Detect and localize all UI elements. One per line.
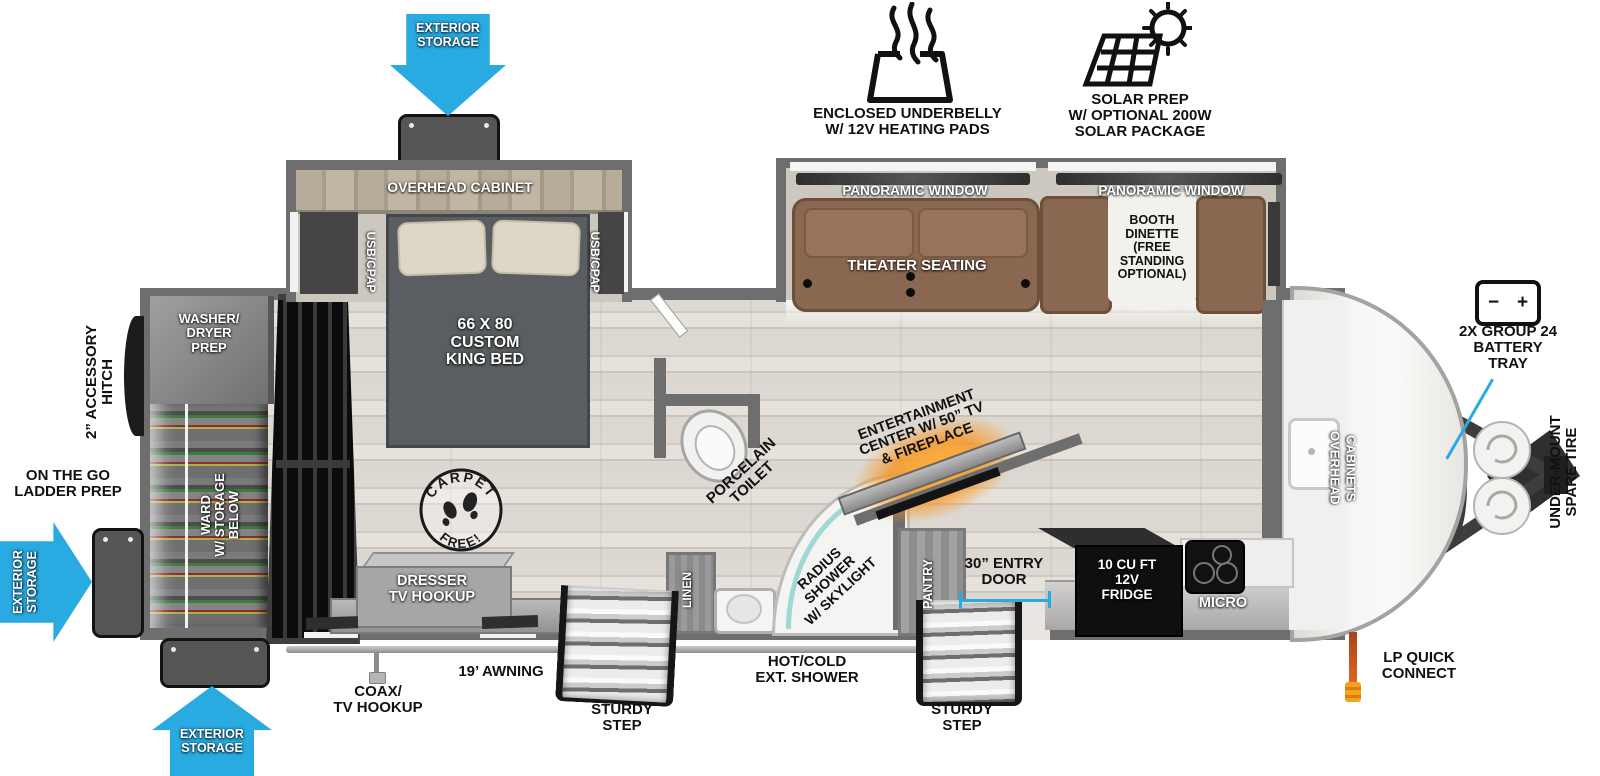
cooktop-burner xyxy=(1216,562,1238,584)
carpet-free-stamp: CARPET FREE! xyxy=(416,466,506,554)
lp-quick-connect-nozzle xyxy=(1345,682,1361,702)
floorplan-diagram: WASHER/ DRYER PREP WARD W/ STORAGE BELOW… xyxy=(0,0,1600,776)
usb-cpap-right-label: USB/CPAP xyxy=(584,214,604,310)
wardrobe-rod xyxy=(185,404,188,628)
dresser-label: DRESSER TV HOOKUP xyxy=(356,574,508,606)
battery-plus: + xyxy=(1517,292,1528,314)
lp-quick-connect-pipe xyxy=(1349,632,1357,684)
living-slide-end-window xyxy=(1268,202,1280,286)
cupholder xyxy=(803,279,812,288)
exterior-storage-door-rear xyxy=(92,528,144,638)
king-bed-label: 66 X 80 CUSTOM KING BED xyxy=(400,316,570,369)
toilet-room-wall xyxy=(654,358,666,458)
underbelly-label: ENCLOSED UNDERBELLY W/ 12V HEATING PADS xyxy=(795,106,1020,138)
pillow xyxy=(491,219,581,276)
entry-door-label: 30” ENTRY DOOR xyxy=(950,556,1058,588)
floor-mat xyxy=(482,615,538,629)
cupholder xyxy=(906,272,915,281)
rear-bumper xyxy=(124,316,144,436)
kitchen-sink-drain xyxy=(1308,448,1315,455)
solar-prep-label: SOLAR PREP W/ OPTIONAL 200W SOLAR PACKAG… xyxy=(1040,92,1240,141)
slatted-divider-rail xyxy=(276,460,350,468)
washer-dryer-label: WASHER/ DRYER PREP xyxy=(150,312,268,355)
sturdy-step-left xyxy=(555,585,679,707)
awning-label: 19’ AWNING xyxy=(442,664,560,680)
cooktop-burner xyxy=(1212,545,1232,565)
panoramic-window-left-label: PANORAMIC WINDOW xyxy=(800,184,1030,199)
propane-tank-icon xyxy=(1474,478,1530,534)
heated-underbelly-icon xyxy=(860,2,960,106)
coax-label: COAX/ TV HOOKUP xyxy=(326,684,430,716)
linen-label: LINEN xyxy=(679,550,697,630)
pillow xyxy=(397,219,487,276)
theater-cushion xyxy=(918,208,1028,258)
entry-door-measure-tick xyxy=(959,591,962,608)
wardrobe-label: WARD W/ STORAGE BELOW xyxy=(189,460,251,570)
entry-door-measure-tick xyxy=(1048,591,1051,608)
micro-label: MICRO xyxy=(1188,596,1258,612)
propane-tank-icon xyxy=(1474,422,1530,478)
ladder-prep-label: ON THE GO LADDER PREP xyxy=(5,468,131,500)
ext-shower-label: HOT/COLD EXT. SHOWER xyxy=(738,654,876,686)
theater-cushion xyxy=(804,208,914,258)
battery-tray-label: 2X GROUP 24 BATTERY TRAY xyxy=(1448,324,1568,373)
sturdy-step-right-label: STURDY STEP xyxy=(914,702,1010,734)
panoramic-window-glass-left xyxy=(790,162,1036,171)
overhead-cabinets-label: OVERHEAD CABINETS xyxy=(1326,402,1372,534)
cooktop-burner xyxy=(1193,562,1215,584)
sturdy-step-left-label: STURDY STEP xyxy=(572,702,672,734)
accessory-hitch-label: 2” ACCESSORY HITCH xyxy=(77,307,123,457)
panoramic-window-glass-right xyxy=(1048,162,1276,171)
cupholder xyxy=(906,288,915,297)
exterior-storage-box-bottom xyxy=(160,638,270,688)
dinette-bench-right xyxy=(1196,196,1266,314)
theater-seating-label: THEATER SEATING xyxy=(822,258,1012,275)
toilet-room-wall xyxy=(654,394,760,406)
overhead-cabinet-label: OVERHEAD CABINET xyxy=(330,180,590,195)
bedroom-window-left xyxy=(290,212,298,292)
panoramic-window-right-label: PANORAMIC WINDOW xyxy=(1056,184,1286,199)
battery-icon: − + xyxy=(1475,280,1541,326)
exterior-storage-bottom-label: EXTERIOR STORAGE xyxy=(152,728,272,756)
floor-mat xyxy=(306,616,358,630)
battery-minus: − xyxy=(1488,292,1499,314)
exterior-storage-left-label: EXTERIOR STORAGE xyxy=(6,527,46,637)
entry-door-measure-line xyxy=(962,599,1050,602)
slatted-divider xyxy=(266,294,360,644)
pantry-label: PANTRY xyxy=(919,539,939,629)
spare-tire-label: UNDER-MOUNT SPARE TIRE xyxy=(1541,382,1587,562)
exterior-storage-top-label: EXTERIOR STORAGE xyxy=(390,22,506,50)
usb-cpap-left-label: USB/CPAP xyxy=(360,214,380,310)
nightstand-left xyxy=(300,212,358,294)
lp-quick-connect-label: LP QUICK CONNECT xyxy=(1366,650,1472,682)
fridge-label: 10 CU FT 12V FRIDGE xyxy=(1075,558,1179,603)
cupholder xyxy=(1021,279,1030,288)
solar-prep-icon xyxy=(1082,2,1192,94)
booth-dinette-label: BOOTH DINETTE (FREE STANDING OPTIONAL) xyxy=(1102,214,1202,282)
